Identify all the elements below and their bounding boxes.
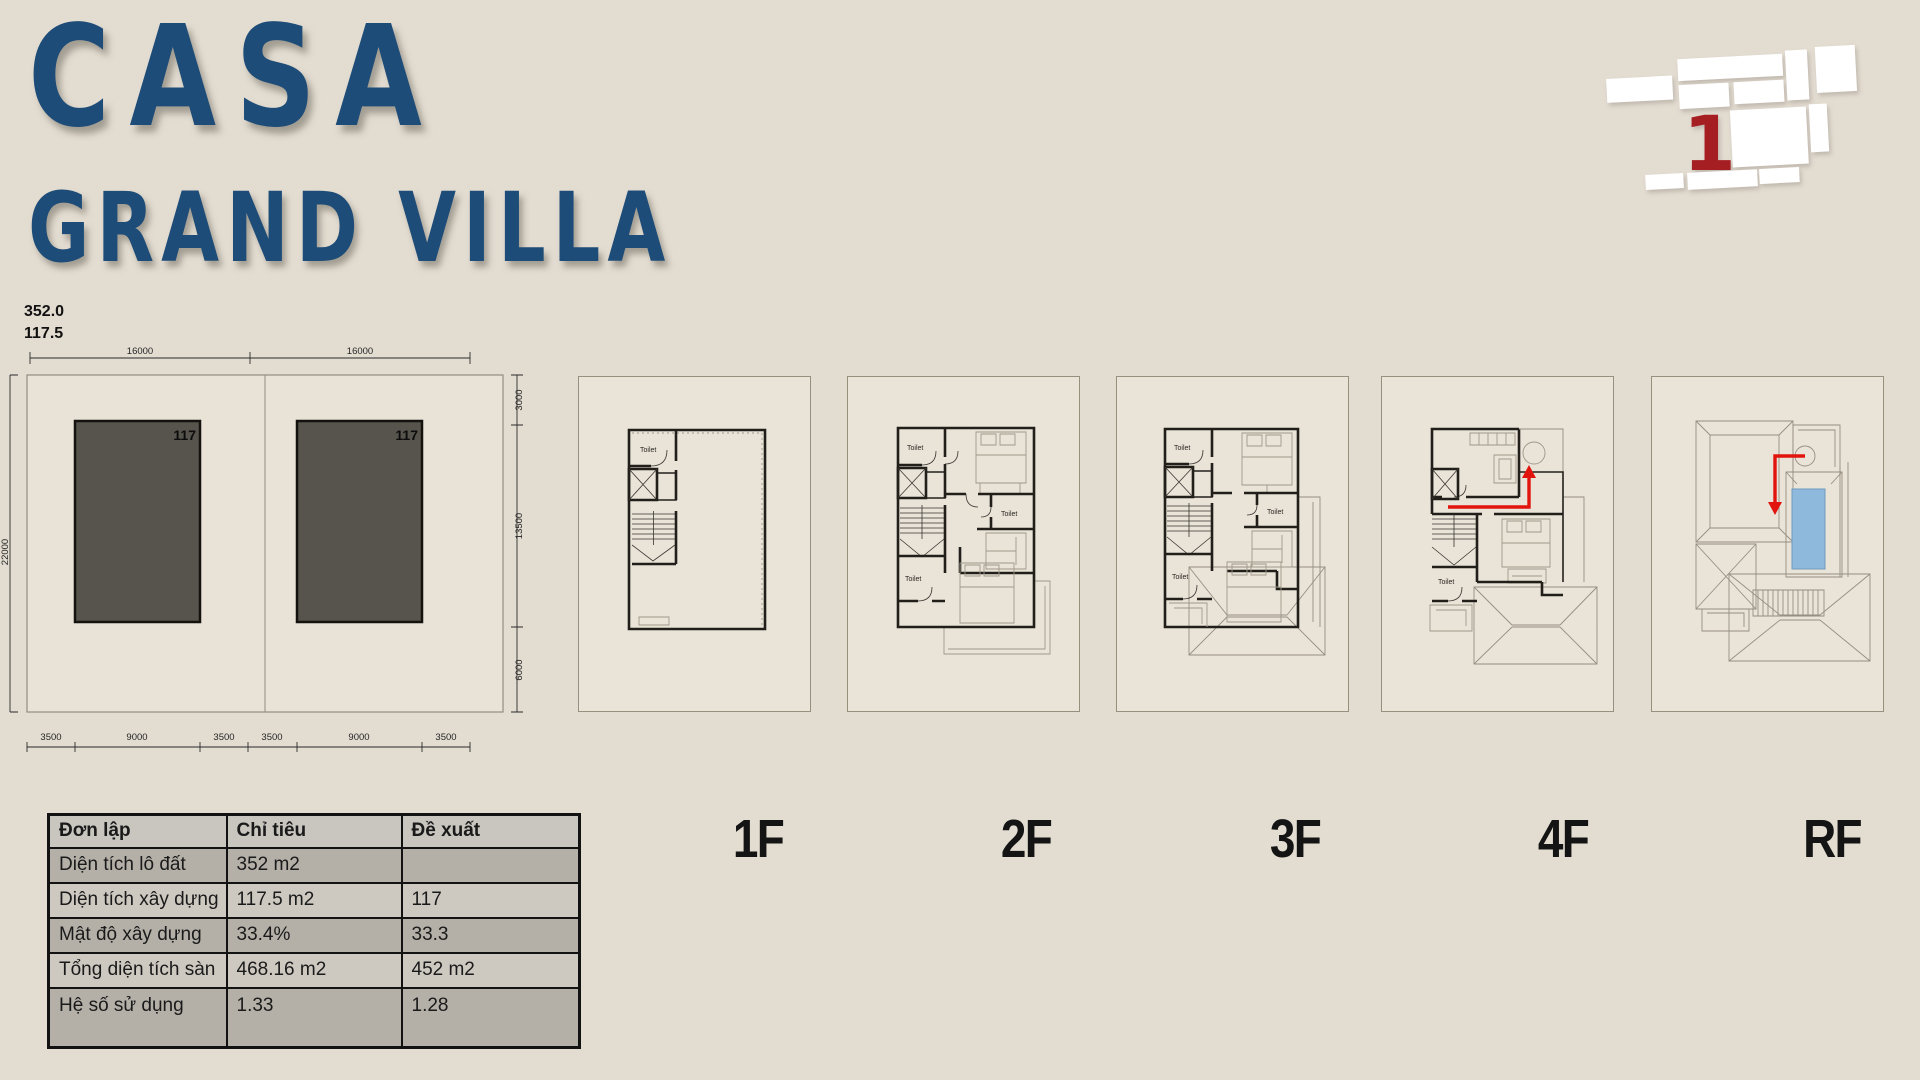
row-proposal bbox=[402, 848, 580, 883]
svg-text:3500: 3500 bbox=[261, 732, 282, 743]
table-row: Diện tích lô đất 352 m2 bbox=[49, 848, 580, 883]
row-proposal: 1.28 bbox=[402, 988, 580, 1048]
furniture bbox=[639, 617, 669, 625]
svg-text:Toilet: Toilet bbox=[1267, 509, 1283, 516]
row-label: Mật độ xây dựng bbox=[49, 918, 227, 953]
dimension-right: 3000 13500 6000 bbox=[511, 375, 525, 712]
row-target: 352 m2 bbox=[227, 848, 402, 883]
row-target: 117.5 m2 bbox=[227, 883, 402, 918]
floor-plan-4f: Toilet bbox=[1382, 377, 1615, 711]
slide: { "header": { "title_line1": "CASA", "ti… bbox=[0, 0, 1920, 1080]
elevator-icon bbox=[1432, 469, 1458, 499]
toilet-room: Toilet bbox=[1432, 567, 1477, 601]
row-proposal: 452 m2 bbox=[402, 953, 580, 988]
svg-text:3000: 3000 bbox=[514, 389, 525, 410]
toilet-room-2: Toilet bbox=[1244, 493, 1298, 527]
dimension-top: 16000 16000 bbox=[30, 346, 470, 364]
page-title: CASA bbox=[28, 4, 689, 152]
unit-area-label-right: 117 bbox=[395, 427, 418, 443]
table-row: Mật độ xây dựng 33.4% 33.3 bbox=[49, 918, 580, 953]
balcony-outline bbox=[1430, 605, 1472, 631]
svg-text:6000: 6000 bbox=[514, 659, 525, 680]
wall-hatch bbox=[632, 433, 762, 626]
svg-text:9000: 9000 bbox=[126, 732, 147, 743]
toilet-room-1: Toilet bbox=[898, 428, 945, 465]
row-label: Diện tích lô đất bbox=[49, 848, 227, 883]
title-block: CASA GRAND VILLA bbox=[28, 0, 854, 276]
row-target: 1.33 bbox=[227, 988, 402, 1048]
masterplan-locator-icon: 1 bbox=[1580, 20, 1900, 205]
floor-label-2f: 2F bbox=[1001, 808, 1051, 870]
bed-icon-2 bbox=[986, 533, 1026, 569]
floor-plan-3f: Toilet Toilet Toilet bbox=[1117, 377, 1350, 711]
row-proposal: 117 bbox=[402, 883, 580, 918]
masterplan-locator: 1 bbox=[1580, 20, 1900, 210]
floor-panel-3f: Toilet Toilet Toilet bbox=[1116, 376, 1349, 712]
floor-label-1f: 1F bbox=[733, 808, 783, 870]
elevator-icon bbox=[898, 464, 945, 498]
stairs-icon bbox=[900, 505, 945, 573]
svg-text:Toilet: Toilet bbox=[640, 447, 656, 454]
row-target: 33.4% bbox=[227, 918, 402, 953]
svg-text:Toilet: Toilet bbox=[1172, 574, 1188, 581]
floor-panel-1f: Toilet bbox=[578, 376, 811, 712]
floor-label-rf: RF bbox=[1803, 808, 1861, 870]
col-header-proposal: Đề xuất bbox=[402, 815, 580, 848]
floor-label-3f: 3F bbox=[1270, 808, 1320, 870]
dimension-left: 22000 bbox=[0, 375, 18, 712]
roof-outline bbox=[1474, 497, 1597, 664]
floor-plan-rf bbox=[1652, 377, 1885, 711]
stairs-hatch bbox=[1758, 590, 1818, 616]
svg-text:3500: 3500 bbox=[213, 732, 234, 743]
bedroom bbox=[1477, 514, 1563, 595]
spec-table: Đơn lập Chỉ tiêu Đề xuất Diện tích lô đấ… bbox=[47, 813, 581, 1049]
unit-area-label-left: 117 bbox=[173, 427, 196, 443]
balcony-outline bbox=[1169, 603, 1207, 627]
locator-unit-number: 1 bbox=[1683, 99, 1736, 188]
toilet-room-3: Toilet bbox=[1165, 554, 1212, 599]
svg-text:16000: 16000 bbox=[347, 346, 373, 357]
svg-text:22000: 22000 bbox=[0, 539, 11, 565]
stairs-icon bbox=[632, 511, 676, 564]
table-row: Diện tích xây dựng 117.5 m2 117 bbox=[49, 883, 580, 918]
svg-text:Toilet: Toilet bbox=[907, 445, 923, 452]
svg-text:Toilet: Toilet bbox=[905, 576, 921, 583]
door-arcs bbox=[945, 451, 978, 507]
svg-text:13500: 13500 bbox=[514, 513, 525, 539]
toilet-room-3: Toilet bbox=[898, 556, 945, 601]
col-header-target: Chỉ tiêu bbox=[227, 815, 402, 848]
table-row: Hệ số sử dụng 1.33 1.28 bbox=[49, 988, 580, 1048]
toilet-room: Toilet bbox=[629, 430, 676, 466]
site-plan-drawing: 352.0 117.5 117 117 16000 16000 22000 30… bbox=[0, 290, 560, 760]
page-subtitle: GRAND VILLA bbox=[28, 180, 672, 276]
svg-text:16000: 16000 bbox=[127, 346, 153, 357]
site-plan: 352.0 117.5 117 117 16000 16000 22000 30… bbox=[0, 290, 560, 765]
row-label: Hệ số sử dụng bbox=[49, 988, 227, 1048]
site-footprint-value: 117.5 bbox=[24, 325, 63, 342]
outer-walls bbox=[629, 430, 765, 629]
svg-text:3500: 3500 bbox=[40, 732, 61, 743]
floor-panel-rf bbox=[1651, 376, 1884, 712]
bed-icon-1 bbox=[976, 432, 1026, 494]
table-header-row: Đơn lập Chỉ tiêu Đề xuất bbox=[49, 815, 580, 848]
row-target: 468.16 m2 bbox=[227, 953, 402, 988]
floor-plan-1f: Toilet bbox=[579, 377, 812, 711]
site-area-value: 352.0 bbox=[24, 303, 64, 320]
floor-plan-2f: Toilet Toilet Toilet bbox=[848, 377, 1081, 711]
toilet-room-1: Toilet bbox=[1165, 429, 1212, 464]
row-proposal: 33.3 bbox=[402, 918, 580, 953]
svg-text:Toilet: Toilet bbox=[1174, 445, 1190, 452]
bed-icon-1 bbox=[1242, 433, 1292, 493]
svg-text:3500: 3500 bbox=[435, 732, 456, 743]
row-label: Tổng diện tích sàn bbox=[49, 953, 227, 988]
pool bbox=[1792, 489, 1825, 569]
col-header-type: Đơn lập bbox=[49, 815, 227, 848]
stairs-icon bbox=[1167, 503, 1212, 571]
dimension-bottom: 3500 9000 3500 3500 9000 3500 bbox=[27, 732, 470, 752]
elevator-icon bbox=[1165, 463, 1212, 497]
svg-text:9000: 9000 bbox=[348, 732, 369, 743]
floor-panel-4f: Toilet bbox=[1381, 376, 1614, 712]
floor-panel-2f: Toilet Toilet Toilet bbox=[847, 376, 1080, 712]
studio-room bbox=[1432, 429, 1519, 514]
bedroom-wall bbox=[1227, 571, 1298, 589]
toilet-room-2: Toilet bbox=[977, 494, 1034, 529]
row-label: Diện tích xây dựng bbox=[49, 883, 227, 918]
floor-label-4f: 4F bbox=[1538, 808, 1588, 870]
elevator-icon bbox=[629, 469, 676, 500]
table-row: Tổng diện tích sàn 468.16 m2 452 m2 bbox=[49, 953, 580, 988]
svg-text:Toilet: Toilet bbox=[1438, 579, 1454, 586]
stairs-icon bbox=[1432, 514, 1477, 582]
svg-text:Toilet: Toilet bbox=[1001, 511, 1017, 518]
